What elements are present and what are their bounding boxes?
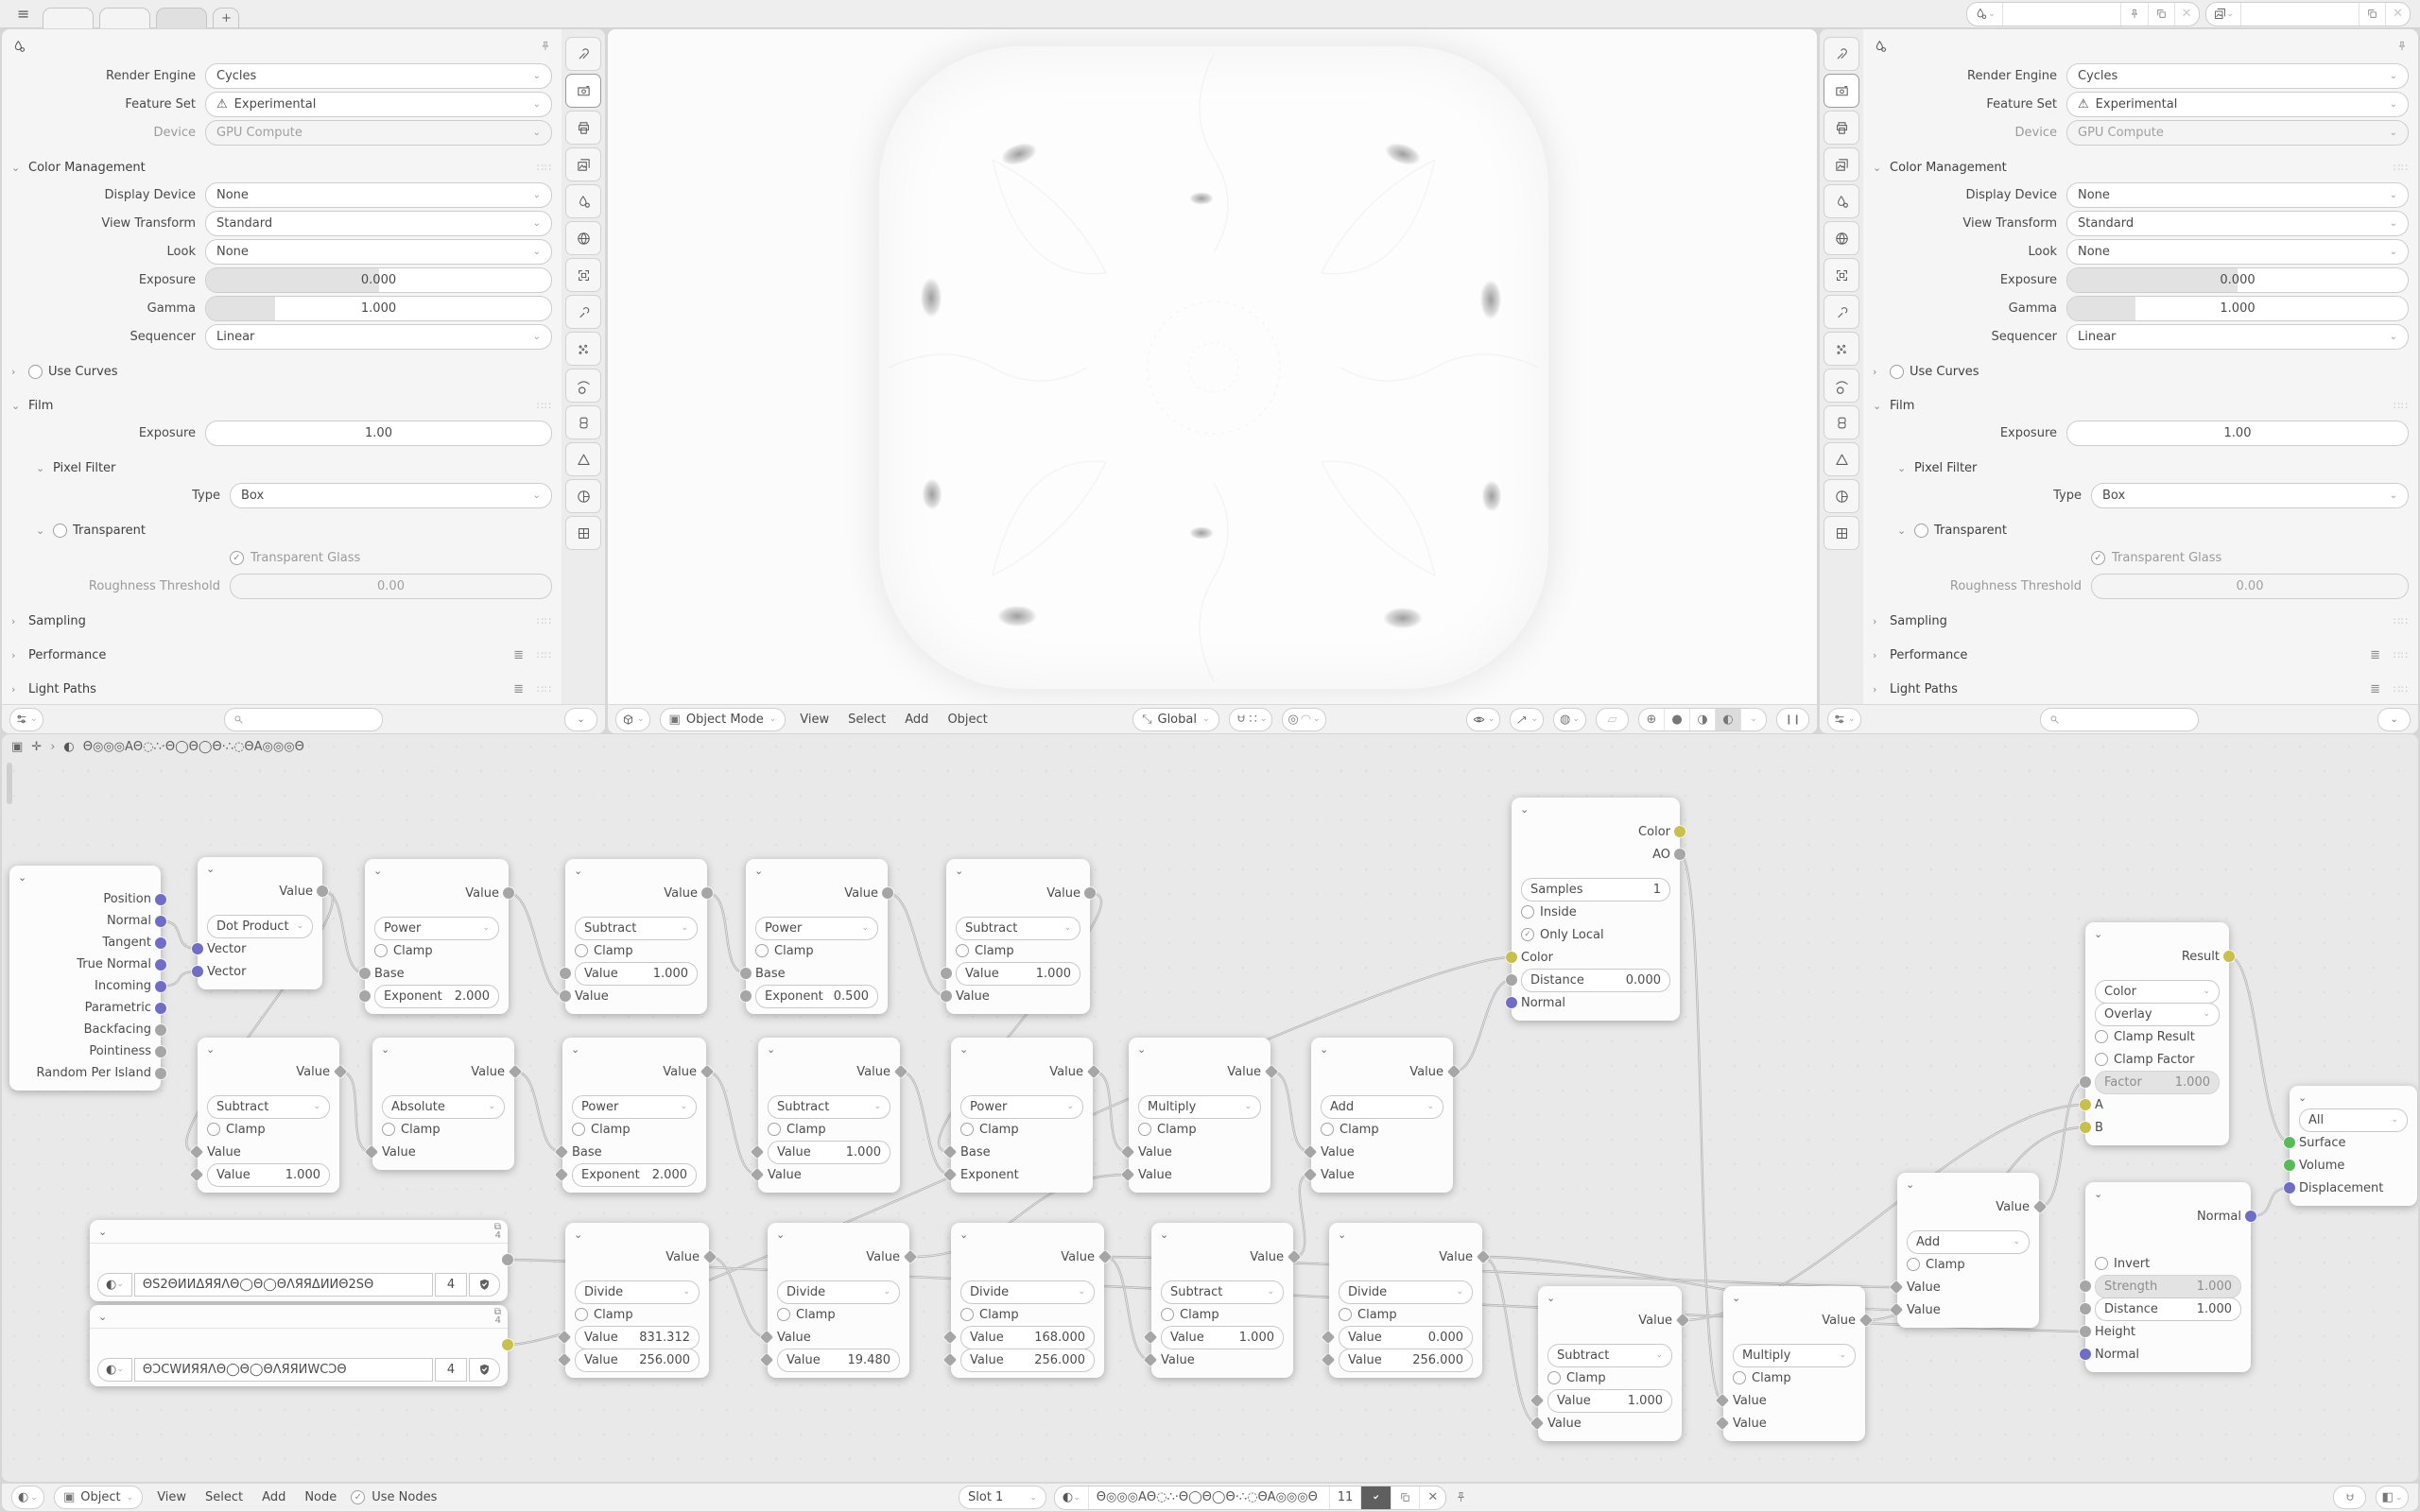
options-chevron-button[interactable]: ⌄ [564, 708, 597, 731]
tab-material[interactable] [1824, 479, 1859, 513]
node-header[interactable]: ⌄ [198, 1038, 339, 1060]
socket[interactable] [700, 1065, 714, 1078]
node-checkbox[interactable]: Clamp [1907, 1258, 1965, 1272]
socket[interactable] [155, 1003, 166, 1014]
node-value-field[interactable]: Value0.000 [1339, 1326, 1473, 1349]
node-value-field[interactable]: Value1.000 [1161, 1326, 1284, 1349]
node-header[interactable]: ⌄ [565, 1223, 709, 1246]
socket[interactable] [155, 1068, 166, 1079]
socket[interactable] [1890, 1280, 1903, 1294]
socket[interactable] [558, 1331, 571, 1344]
dropdown-type[interactable]: Box⌄ [230, 483, 552, 508]
tab-tool[interactable] [565, 37, 601, 71]
node-header[interactable]: ⌄ [1723, 1286, 1865, 1309]
fake-user-shield-icon[interactable] [469, 1273, 500, 1297]
socket[interactable] [943, 1168, 957, 1181]
socket[interactable] [1530, 1417, 1544, 1430]
add-workspace-button[interactable]: + [213, 8, 239, 28]
node-dropdown[interactable]: Absolute⌄ [382, 1095, 505, 1119]
node-value-field[interactable]: Value831.312 [575, 1326, 700, 1349]
tab-physics[interactable] [1824, 369, 1859, 403]
shading-solid[interactable]: ● [1665, 709, 1690, 730]
shading-rendered[interactable]: ◐ [1716, 709, 1741, 730]
texture-users-count[interactable]: 4 [435, 1358, 467, 1382]
node-multiply2[interactable]: ⌄ValueMultiply⌄ClampValueValue [1723, 1286, 1865, 1441]
node-value-field[interactable]: Exponent2.000 [572, 1163, 697, 1187]
node-dropdown[interactable]: Power⌄ [960, 1095, 1083, 1119]
dropdown-view-transform[interactable]: Standard⌄ [2066, 211, 2409, 236]
node-value-field[interactable]: Value1.000 [768, 1141, 890, 1164]
socket[interactable] [2284, 1160, 2295, 1171]
section-checkbox[interactable] [28, 365, 43, 379]
tab-constraints[interactable] [565, 405, 601, 439]
node-divide2[interactable]: ⌄ValueDivide⌄ClampValueValue19.480 [768, 1223, 909, 1378]
socket[interactable] [2080, 1303, 2091, 1314]
texture-browse-button[interactable]: ◐⌄ [97, 1358, 132, 1382]
pause-render-button[interactable]: ❙❙ [1776, 708, 1809, 731]
node-ao[interactable]: ⌄ColorAOSamples1Inside✓Only LocalColorDi… [1512, 798, 1680, 1021]
node-header[interactable]: ⌄ [562, 1038, 706, 1060]
socket[interactable] [155, 981, 166, 992]
copy-icon[interactable] [1391, 1486, 1420, 1509]
socket[interactable] [2245, 1211, 2256, 1222]
node-value-field[interactable]: Distance0.000 [1521, 969, 1670, 992]
socket[interactable] [2080, 1349, 2091, 1360]
menu-object[interactable]: Object [942, 713, 992, 727]
socket[interactable] [894, 1065, 907, 1078]
tab-object[interactable] [1824, 258, 1859, 292]
checkbox-transparent-glass[interactable]: ✓Transparent Glass [230, 551, 552, 565]
tab-scene[interactable] [1824, 184, 1859, 218]
socket[interactable] [155, 1046, 166, 1057]
socket[interactable] [941, 990, 952, 1002]
node-subtract6[interactable]: ⌄ValueSubtract⌄ClampValue1.000Value [1538, 1286, 1682, 1441]
node-subtract4[interactable]: ⌄ValueSubtract⌄ClampValue1.000Value [758, 1038, 900, 1193]
node-checkbox[interactable]: Clamp [382, 1123, 441, 1137]
tab-render[interactable] [565, 74, 601, 108]
tab-modifiers[interactable] [565, 295, 601, 329]
node-value-field[interactable]: Value256.000 [960, 1349, 1095, 1372]
socket[interactable] [1322, 1353, 1335, 1366]
copy-icon[interactable] [2149, 3, 2175, 26]
socket[interactable] [1676, 1314, 1689, 1327]
socket[interactable] [509, 1065, 522, 1078]
tab-material[interactable] [565, 479, 601, 513]
overlays-dropdown[interactable]: ◍⌄ [1553, 708, 1586, 731]
socket[interactable] [192, 943, 203, 954]
node-checkbox[interactable]: Clamp [572, 1123, 631, 1137]
socket[interactable] [1859, 1314, 1873, 1327]
socket[interactable] [882, 887, 893, 899]
socket[interactable] [1144, 1353, 1157, 1366]
node-subtract3[interactable]: ⌄ValueSubtract⌄ClampValueValue1.000 [198, 1038, 339, 1193]
socket[interactable] [317, 885, 328, 897]
node-checkbox[interactable]: Clamp [755, 944, 814, 958]
node-value-field[interactable]: Value1.000 [956, 962, 1080, 986]
socket[interactable] [2080, 1076, 2091, 1088]
node-checkbox[interactable]: Clamp Result [2095, 1030, 2195, 1044]
texture-browse-button[interactable]: ◐⌄ [97, 1273, 132, 1297]
socket[interactable] [1084, 887, 1096, 899]
tab-physics[interactable] [565, 369, 601, 403]
socket[interactable] [1890, 1303, 1903, 1316]
socket[interactable] [503, 887, 514, 899]
frame-icon[interactable]: ▣ [11, 740, 23, 754]
search-input[interactable] [224, 708, 383, 731]
section-pixel-filter[interactable]: ⌄Pixel Filter [11, 455, 552, 480]
node-header[interactable]: ⌄ [1311, 1038, 1453, 1060]
editor-type-button[interactable]: ⌄ [615, 708, 650, 731]
node-checkbox[interactable]: Invert [2095, 1257, 2150, 1271]
node-geometry[interactable]: ⌄PositionNormalTangentTrue NormalIncomin… [9, 866, 161, 1091]
node-dropdown[interactable]: Divide⌄ [575, 1280, 700, 1304]
socket[interactable] [1304, 1145, 1317, 1159]
transform-orientation[interactable]: ⤡Global⌄ [1132, 708, 1219, 731]
node-header[interactable]: ⌄ [198, 857, 322, 880]
menu-add[interactable]: Add [900, 713, 933, 727]
node-checkbox[interactable]: Inside [1521, 905, 1577, 919]
node-checkbox[interactable]: Clamp [1321, 1123, 1379, 1137]
options-chevron-button[interactable]: ⌄ [2377, 708, 2411, 731]
socket[interactable] [701, 887, 713, 899]
editor-type-button[interactable]: ◐⌄ [11, 1486, 44, 1509]
node-checkbox[interactable]: Clamp [1733, 1371, 1791, 1385]
node-checkbox[interactable]: Clamp [575, 944, 633, 958]
section-use-curves[interactable]: ›Use Curves [11, 359, 552, 384]
menu-add[interactable]: Add [257, 1490, 290, 1504]
visibility-dropdown[interactable]: ⌄ [1466, 708, 1501, 731]
node-value-field[interactable]: Value168.000 [960, 1326, 1095, 1349]
node-header[interactable]: ⌄ [1151, 1223, 1293, 1246]
socket[interactable] [1121, 1145, 1134, 1159]
node-checkbox[interactable]: Clamp [960, 1123, 1019, 1137]
node-value-field[interactable]: Exponent2.000 [374, 985, 499, 1008]
slider-roughness-threshold[interactable]: 0.00 [230, 574, 552, 599]
slider-exposure[interactable]: 1.00 [205, 421, 552, 446]
tab-world[interactable] [565, 221, 601, 255]
socket[interactable] [502, 1254, 513, 1265]
dropdown-look[interactable]: None⌄ [2066, 239, 2409, 265]
socket[interactable] [2223, 951, 2235, 962]
node-dropdown[interactable]: Overlay⌄ [2095, 1003, 2220, 1026]
node-power1[interactable]: ⌄ValuePower⌄ClampBaseExponent2.000 [365, 859, 509, 1014]
node-header[interactable]: ⌄ [1512, 798, 1680, 820]
socket[interactable] [1304, 1168, 1317, 1181]
material-users-count[interactable]: 11 [1330, 1486, 1362, 1509]
menu-view[interactable]: View [795, 713, 834, 727]
socket[interactable] [1477, 1250, 1490, 1263]
tab-object[interactable] [565, 258, 601, 292]
socket[interactable] [1716, 1417, 1729, 1430]
node-checkbox[interactable]: Clamp [575, 1308, 633, 1322]
pin-icon[interactable] [2121, 3, 2149, 26]
close-icon[interactable]: ✕ [2175, 3, 2199, 26]
overlays-node-button[interactable]: ◧⌄ [2376, 1486, 2409, 1509]
mode-selector[interactable]: ▣Object Mode⌄ [660, 708, 786, 731]
app-menu-icon[interactable]: ≡ [9, 5, 37, 23]
node-dropdown[interactable]: Subtract⌄ [768, 1095, 890, 1119]
node-dropdown[interactable]: Divide⌄ [777, 1280, 900, 1304]
dropdown-type[interactable]: Box⌄ [2091, 483, 2409, 508]
socket[interactable] [1674, 826, 1685, 837]
node-header[interactable]: ⌄ [951, 1223, 1104, 1246]
menu-view[interactable]: View [152, 1490, 191, 1504]
socket[interactable] [2033, 1200, 2047, 1213]
workspace-tab[interactable] [99, 8, 150, 28]
socket[interactable] [558, 1353, 571, 1366]
socket[interactable] [359, 990, 371, 1002]
section-color-management[interactable]: ⌄Color Management∷∷ [11, 155, 552, 180]
node-subtract5[interactable]: ⌄ValueSubtract⌄ClampValue1.000Value [1151, 1223, 1293, 1378]
socket[interactable] [365, 1145, 378, 1159]
slider-exposure[interactable]: 1.00 [2066, 421, 2409, 446]
workspace-tab-active[interactable] [156, 8, 207, 28]
node-dropdown[interactable]: Subtract⌄ [956, 917, 1080, 940]
node-dropdown[interactable]: Add⌄ [1321, 1095, 1443, 1119]
section-transparent[interactable]: ⌄Transparent [1873, 518, 2409, 542]
node-bump[interactable]: ⌄NormalInvertStrength1.000Distance1.000H… [2085, 1182, 2251, 1372]
node-subtract2[interactable]: ⌄ValueSubtract⌄ClampValue1.000Value [946, 859, 1090, 1014]
node-header[interactable]: ⌄ [1897, 1173, 2039, 1195]
dropdown-sequencer[interactable]: Linear⌄ [2066, 324, 2409, 350]
shading-dropdown[interactable]: ⌄ [1741, 709, 1766, 730]
node-output[interactable]: ⌄All⌄SurfaceVolumeDisplacement [2290, 1086, 2417, 1206]
socket[interactable] [1121, 1168, 1134, 1181]
socket[interactable] [155, 937, 166, 949]
section-checkbox[interactable] [1890, 365, 1904, 379]
section-film[interactable]: ⌄Film∷∷ [11, 393, 552, 418]
socket[interactable] [740, 990, 752, 1002]
section-sampling[interactable]: ›Sampling∷∷ [11, 609, 552, 633]
node-tex2[interactable]: ⌄⧉4◐⌄ΘƆCWИЯЯΛΘ◯Θ◯ΘΛЯЯИWCƆΘ4 [90, 1305, 508, 1386]
socket[interactable] [1144, 1331, 1157, 1344]
socket[interactable] [560, 990, 571, 1002]
socket[interactable] [359, 968, 371, 979]
node-dropdown[interactable]: Power⌄ [755, 917, 878, 940]
dropdown-look[interactable]: None⌄ [205, 239, 552, 265]
node-value-field[interactable]: Value256.000 [1339, 1349, 1473, 1372]
node-header[interactable]: ⌄ [1329, 1223, 1482, 1246]
socket[interactable] [1506, 952, 1517, 963]
socket[interactable] [1098, 1250, 1112, 1263]
node-header[interactable]: ⌄ [372, 1038, 514, 1060]
socket[interactable] [1530, 1394, 1544, 1407]
node-checkbox[interactable]: Clamp [960, 1308, 1019, 1322]
node-header[interactable]: ⌄⧉4 [90, 1220, 508, 1244]
tab-data[interactable] [1824, 442, 1859, 476]
checkbox-transparent-glass[interactable]: ✓Transparent Glass [2091, 551, 2409, 565]
node-value-field[interactable]: Factor1.000 [2095, 1071, 2220, 1094]
pin-icon[interactable] [1454, 1490, 1468, 1504]
node-checkbox[interactable]: Clamp [1138, 1123, 1197, 1137]
tab-viewlayer[interactable] [565, 147, 601, 181]
copy-icon[interactable] [2359, 3, 2386, 26]
socket[interactable] [2080, 1122, 2091, 1133]
dropdown-sequencer[interactable]: Linear⌄ [205, 324, 552, 350]
node-value-field[interactable]: Samples1 [1521, 878, 1670, 902]
socket[interactable] [2080, 1326, 2091, 1337]
socket[interactable] [1322, 1331, 1335, 1344]
material-browse-button[interactable]: ◐⌄ [1055, 1486, 1089, 1509]
viewport-canvas[interactable] [608, 29, 1817, 704]
slider-exposure[interactable]: 0.000 [2066, 267, 2409, 293]
section-performance[interactable]: ›Performance≣∷∷ [11, 643, 552, 667]
tab-tool[interactable] [1824, 37, 1859, 71]
socket[interactable] [1716, 1394, 1729, 1407]
menu-node[interactable]: Node [300, 1490, 341, 1504]
node-dropdown[interactable]: Subtract⌄ [1161, 1280, 1284, 1304]
socket[interactable] [1087, 1065, 1100, 1078]
node-power4[interactable]: ⌄ValuePower⌄ClampBaseExponent [951, 1038, 1093, 1193]
node-dropdown[interactable]: Subtract⌄ [1547, 1344, 1672, 1367]
tab-data[interactable] [565, 442, 601, 476]
socket[interactable] [2284, 1182, 2295, 1194]
node-dropdown[interactable]: Dot Product⌄ [207, 915, 313, 938]
node-header[interactable]: ⌄ [951, 1038, 1093, 1060]
close-icon[interactable]: ✕ [1420, 1486, 1445, 1509]
node-value-field[interactable]: Value1.000 [1547, 1389, 1672, 1413]
socket[interactable] [760, 1331, 773, 1344]
socket[interactable] [1288, 1250, 1301, 1263]
editor-type-button[interactable]: ⌄ [1827, 708, 1861, 731]
tab-texture[interactable] [565, 516, 601, 550]
socket[interactable] [2080, 1099, 2091, 1110]
tab-texture[interactable] [1824, 516, 1859, 550]
node-header[interactable]: ⌄ [2085, 1182, 2251, 1205]
workspace-tab[interactable] [43, 8, 94, 28]
use-nodes-checkbox[interactable]: ✓Use Nodes [351, 1490, 437, 1504]
dropdown-feature-set[interactable]: ⚠Experimental⌄ [2066, 92, 2409, 117]
tab-particles[interactable] [1824, 332, 1859, 366]
node-value-field[interactable]: Value1.000 [207, 1163, 330, 1187]
node-checkbox[interactable]: ✓Only Local [1521, 928, 1604, 942]
shading-material[interactable]: ◑ [1690, 709, 1716, 730]
node-divide3[interactable]: ⌄ValueDivide⌄ClampValue168.000Value256.0… [951, 1223, 1104, 1378]
section-film[interactable]: ⌄Film∷∷ [1873, 393, 2409, 418]
dropdown-view-transform[interactable]: Standard⌄ [205, 211, 552, 236]
dropdown-display-device[interactable]: None⌄ [2066, 182, 2409, 208]
node-dot[interactable]: ⌄ValueDot Product⌄VectorVector [198, 857, 322, 989]
node-header[interactable]: ⌄ [2085, 922, 2229, 945]
material-name-field[interactable]: Θ◎◎◎AΘ◌∴·Θ◯Θ◯Θ·∴◌ΘA◎◎◎Θ [1089, 1486, 1330, 1509]
node-divide1[interactable]: ⌄ValueDivide⌄ClampValue831.312Value256.0… [565, 1223, 709, 1378]
socket[interactable] [502, 1339, 513, 1350]
node-subtract1[interactable]: ⌄ValueSubtract⌄ClampValue1.000Value [565, 859, 707, 1014]
tab-viewlayer[interactable] [1824, 147, 1859, 181]
dropdown-feature-set[interactable]: ⚠Experimental⌄ [205, 92, 552, 117]
tab-output[interactable] [1824, 111, 1859, 145]
node-power3[interactable]: ⌄ValuePower⌄ClampBaseExponent2.000 [562, 1038, 706, 1193]
view-layer-name-field[interactable] [2241, 3, 2359, 26]
tab-constraints[interactable] [1824, 405, 1859, 439]
add-icon[interactable]: ✛ [31, 740, 42, 754]
socket[interactable] [192, 966, 203, 977]
node-multiply1[interactable]: ⌄ValueMultiply⌄ClampValueValue [1129, 1038, 1270, 1193]
node-header[interactable]: ⌄ [565, 859, 707, 882]
shading-wireframe[interactable]: ⊕ [1639, 709, 1665, 730]
shader-type-selector[interactable]: ▣Object⌄ [54, 1486, 143, 1509]
node-value-field[interactable]: Strength1.000 [2095, 1275, 2241, 1298]
node-absolute[interactable]: ⌄ValueAbsolute⌄ClampValue [372, 1038, 514, 1170]
node-dropdown[interactable]: Multiply⌄ [1733, 1344, 1856, 1367]
socket[interactable] [1447, 1065, 1461, 1078]
node-dropdown[interactable]: Color⌄ [2095, 980, 2220, 1004]
socket[interactable] [560, 968, 571, 979]
node-header[interactable]: ⌄ [2290, 1086, 2417, 1108]
socket[interactable] [190, 1168, 203, 1181]
slider-gamma[interactable]: 1.000 [205, 296, 552, 321]
section-performance[interactable]: ›Performance≣∷∷ [1873, 643, 2409, 667]
fake-user-shield-icon[interactable] [469, 1358, 500, 1382]
node-value-field[interactable]: Value19.480 [777, 1349, 900, 1372]
socket[interactable] [334, 1065, 347, 1078]
node-mix[interactable]: ⌄ResultColor⌄Overlay⌄Clamp ResultClamp F… [2085, 922, 2229, 1145]
socket[interactable] [760, 1353, 773, 1366]
node-checkbox[interactable]: Clamp [777, 1308, 836, 1322]
socket[interactable] [555, 1168, 568, 1181]
node-checkbox[interactable]: Clamp Factor [2095, 1053, 2195, 1067]
snap-toggle[interactable]: ∷⌄ [1229, 708, 1273, 731]
scene-name-field[interactable] [2003, 3, 2121, 26]
pin-icon[interactable] [539, 40, 552, 53]
socket[interactable] [155, 1024, 166, 1036]
section-light-paths[interactable]: ›Light Paths≣∷∷ [1873, 677, 2409, 701]
node-checkbox[interactable]: Clamp [1339, 1308, 1397, 1322]
node-value-field[interactable]: Value1.000 [575, 962, 698, 986]
gizmo-dropdown[interactable]: ⌄ [1510, 708, 1544, 731]
node-dropdown[interactable]: Subtract⌄ [575, 917, 698, 940]
section-transparent[interactable]: ⌄Transparent [11, 518, 552, 542]
socket[interactable] [943, 1353, 957, 1366]
node-header[interactable]: ⌄ [758, 1038, 900, 1060]
node-value-field[interactable]: Distance1.000 [2095, 1297, 2241, 1321]
socket[interactable] [751, 1145, 764, 1159]
node-dropdown[interactable]: Power⌄ [374, 917, 499, 940]
socket[interactable] [943, 1145, 957, 1159]
socket[interactable] [2284, 1137, 2295, 1148]
texture-users-count[interactable]: 4 [435, 1273, 467, 1297]
socket[interactable] [1674, 849, 1685, 860]
socket[interactable] [703, 1250, 717, 1263]
node-checkbox[interactable]: Clamp [956, 944, 1014, 958]
socket[interactable] [943, 1331, 957, 1344]
section-pixel-filter[interactable]: ⌄Pixel Filter [1873, 455, 2409, 480]
scene-selector[interactable]: ⌄ ✕ [1966, 2, 2199, 26]
node-power2[interactable]: ⌄ValuePower⌄ClampBaseExponent0.500 [746, 859, 888, 1014]
node-tex1[interactable]: ⌄⧉4◐⌄ΘS2ΘИИΔЯЯΛΘ◯Θ◯ΘΛЯЯΔИИΘ2SΘ4 [90, 1220, 508, 1301]
texture-name-field[interactable]: ΘS2ΘИИΔЯЯΛΘ◯Θ◯ΘΛЯЯΔИИΘ2SΘ [134, 1273, 433, 1297]
node-checkbox[interactable]: Clamp [1161, 1308, 1219, 1322]
slider-exposure[interactable]: 0.000 [205, 267, 552, 293]
node-dropdown[interactable]: Power⌄ [572, 1095, 697, 1119]
node-dropdown[interactable]: Subtract⌄ [207, 1095, 330, 1119]
shader-node-editor[interactable]: ▣ ✛ › ◐ Θ◎◎◎AΘ◌∴·Θ◯Θ◯Θ·∴◌ΘA◎◎◎Θ ⌄Positio… [2, 734, 2418, 1482]
tab-particles[interactable] [565, 332, 601, 366]
node-divide4[interactable]: ⌄ValueDivide⌄ClampValue0.000Value256.000 [1329, 1223, 1482, 1378]
node-header[interactable]: ⌄⧉4 [90, 1305, 508, 1329]
fake-user-shield-icon[interactable] [1361, 1486, 1391, 1509]
node-header[interactable]: ⌄ [1129, 1038, 1270, 1060]
socket[interactable] [190, 1145, 203, 1159]
socket[interactable] [1506, 974, 1517, 986]
socket[interactable] [2080, 1280, 2091, 1292]
tab-output[interactable] [565, 111, 601, 145]
node-checkbox[interactable]: Clamp [374, 944, 433, 958]
node-value-field[interactable]: Value256.000 [575, 1349, 700, 1372]
dropdown-device[interactable]: GPU Compute⌄ [2066, 120, 2409, 146]
socket[interactable] [751, 1168, 764, 1181]
dropdown-render-engine[interactable]: Cycles⌄ [2066, 63, 2409, 89]
